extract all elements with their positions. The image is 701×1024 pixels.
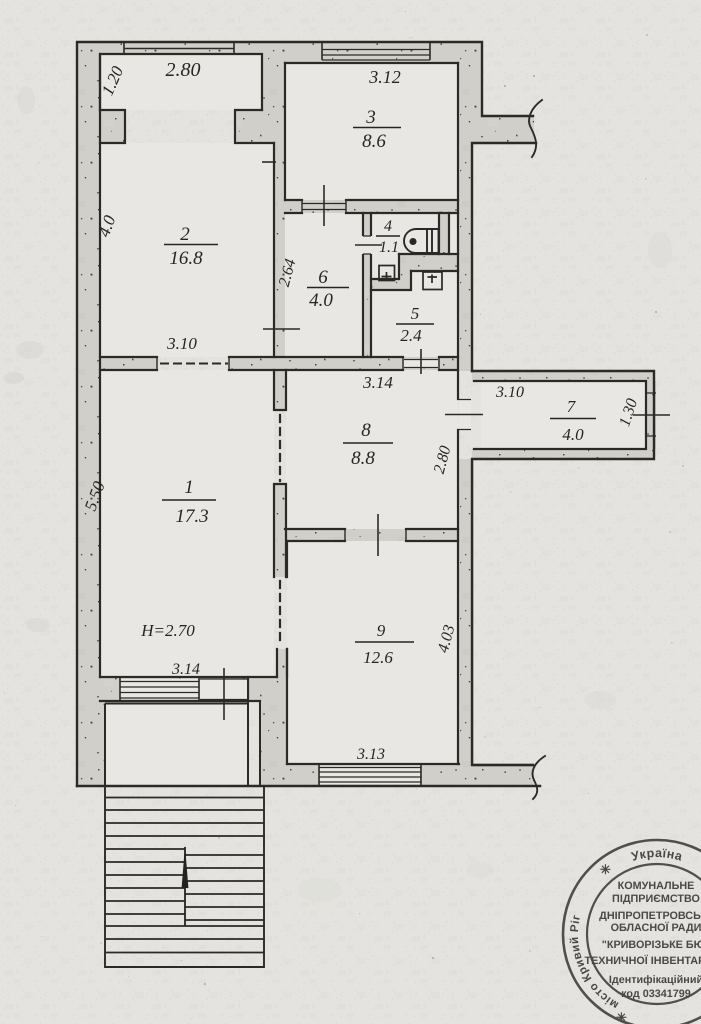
svg-text:8: 8: [361, 420, 371, 441]
svg-text:3.13: 3.13: [356, 746, 385, 763]
svg-text:12.6: 12.6: [363, 648, 393, 667]
svg-text:8.6: 8.6: [362, 131, 386, 152]
svg-text:ОБЛАСНОЇ РАДИ: ОБЛАСНОЇ РАДИ: [611, 921, 701, 934]
svg-text:ТЕХНИЧНОЇ ІНВЕНТАРИЗАЦІЇ: ТЕХНИЧНОЇ ІНВЕНТАРИЗАЦІЇ: [584, 954, 701, 967]
svg-text:3: 3: [365, 107, 376, 128]
svg-text:✳: ✳: [600, 862, 611, 877]
svg-text:3.14: 3.14: [171, 661, 200, 678]
svg-text:код 03341799: код 03341799: [621, 988, 691, 1000]
svg-text:Ідентифікаційний: Ідентифікаційний: [609, 974, 701, 986]
svg-text:1.1: 1.1: [379, 239, 399, 256]
svg-text:ДНІПРОПЕТРОВСЬКОЇ: ДНІПРОПЕТРОВСЬКОЇ: [599, 909, 701, 922]
svg-text:8.8: 8.8: [351, 448, 375, 469]
svg-text:4.0: 4.0: [309, 290, 333, 311]
svg-text:3.12: 3.12: [368, 67, 401, 87]
svg-text:✳: ✳: [616, 1010, 627, 1024]
svg-text:16.8: 16.8: [169, 248, 203, 269]
svg-text:2.80: 2.80: [166, 59, 201, 81]
svg-text:4: 4: [384, 218, 392, 235]
svg-text:H=2.70: H=2.70: [140, 621, 195, 640]
svg-text:4.0: 4.0: [562, 425, 584, 444]
svg-text:5: 5: [411, 304, 420, 323]
svg-text:17.3: 17.3: [175, 506, 208, 527]
svg-text:2.4: 2.4: [400, 326, 422, 345]
svg-text:2: 2: [180, 224, 190, 245]
svg-text:3.10: 3.10: [495, 384, 524, 401]
svg-text:1: 1: [184, 477, 194, 498]
svg-text:ПІДПРИЄМСТВО: ПІДПРИЄМСТВО: [612, 893, 700, 905]
svg-text:6: 6: [318, 267, 328, 288]
svg-text:3.10: 3.10: [166, 334, 197, 353]
svg-text:3.14: 3.14: [362, 373, 393, 392]
svg-text:"КРИВОРІЗЬКЕ БЮРО: "КРИВОРІЗЬКЕ БЮРО: [602, 939, 701, 951]
svg-text:КОМУНАЛЬНЕ: КОМУНАЛЬНЕ: [618, 880, 695, 892]
svg-text:9: 9: [377, 621, 386, 640]
